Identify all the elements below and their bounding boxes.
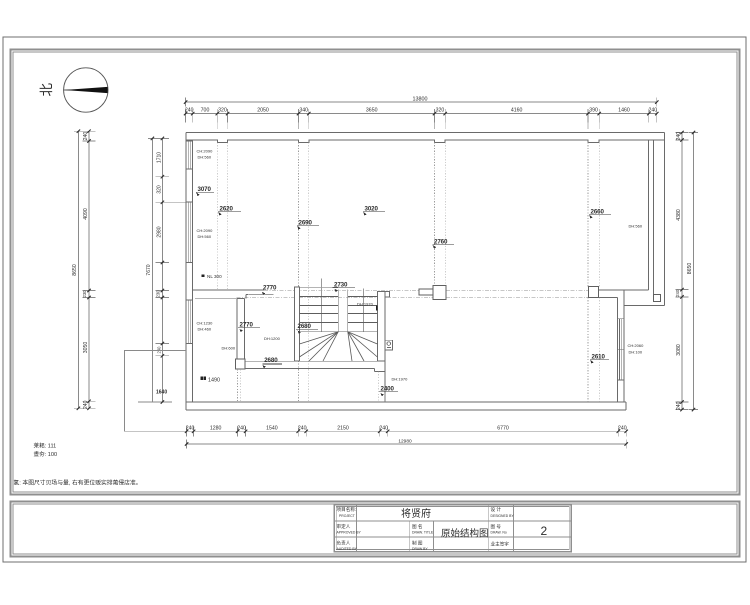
svg-text:DH:1970: DH:1970 <box>392 377 409 382</box>
svg-text:1540: 1540 <box>266 426 278 432</box>
svg-text:AUDITED BY: AUDITED BY <box>337 547 358 551</box>
svg-text:6770: 6770 <box>497 426 509 432</box>
svg-text:制 图: 制 图 <box>412 540 423 547</box>
svg-text:230: 230 <box>82 290 87 298</box>
svg-text:230: 230 <box>155 290 160 298</box>
svg-text:3650: 3650 <box>366 108 378 114</box>
svg-text:DH:100: DH:100 <box>629 350 643 355</box>
svg-text:240: 240 <box>675 289 680 297</box>
svg-text:340: 340 <box>299 108 308 114</box>
svg-text:320: 320 <box>218 108 227 114</box>
svg-text:1280: 1280 <box>210 426 222 432</box>
svg-text:3050: 3050 <box>83 342 89 354</box>
svg-text:NL 300: NL 300 <box>207 274 222 279</box>
svg-text:DRAW BY: DRAW BY <box>412 547 428 551</box>
svg-text:图 名: 图 名 <box>412 523 422 530</box>
svg-text:将贤府: 将贤府 <box>401 507 431 520</box>
svg-text:12980: 12980 <box>398 438 412 444</box>
svg-text:负责人: 负责人 <box>337 540 351 547</box>
svg-text:DH:560: DH:560 <box>198 155 212 160</box>
svg-text:晝夯: 100: 晝夯: 100 <box>34 450 58 458</box>
svg-text:4380: 4380 <box>676 209 682 221</box>
svg-text:DH:560: DH:560 <box>198 234 212 239</box>
svg-text:氢: 本图尺寸贝场与量, 右有更位贩实排萬侵店准。: 氢: 本图尺寸贝场与量, 右有更位贩实排萬侵店准。 <box>13 479 141 487</box>
svg-text:DRAW. TITLE: DRAW. TITLE <box>412 531 434 535</box>
svg-text:700: 700 <box>201 108 210 114</box>
svg-text:320: 320 <box>436 108 445 114</box>
svg-text:2770: 2770 <box>263 285 277 292</box>
svg-text:8650: 8650 <box>687 263 693 275</box>
svg-text:DESIGNED BY: DESIGNED BY <box>491 514 515 518</box>
svg-text:项目名称:: 项目名称: <box>337 506 357 513</box>
svg-text:DH:460: DH:460 <box>198 327 212 332</box>
svg-text:北: 北 <box>39 82 54 96</box>
svg-text:CH:2060: CH:2060 <box>628 343 645 348</box>
svg-text:莱耜: 111: 莱耜: 111 <box>34 442 57 450</box>
svg-text:1490: 1490 <box>208 378 220 384</box>
svg-text:4090: 4090 <box>83 208 89 220</box>
svg-text:320: 320 <box>156 185 162 194</box>
svg-text:DH:1200: DH:1200 <box>264 336 281 341</box>
svg-text:DRAW. No: DRAW. No <box>491 531 507 535</box>
svg-text:CH:1230: CH:1230 <box>197 321 214 326</box>
svg-text:原始结构图: 原始结构图 <box>441 527 489 539</box>
svg-text:PROJECT: PROJECT <box>339 514 355 518</box>
svg-text:3080: 3080 <box>676 344 682 356</box>
svg-text:1640: 1640 <box>156 390 167 396</box>
svg-text:业主签字: 业主签字 <box>491 541 510 547</box>
svg-text:2680: 2680 <box>264 357 278 364</box>
svg-text:240: 240 <box>83 132 89 141</box>
svg-text:设 计: 设 计 <box>491 506 502 513</box>
svg-text:2: 2 <box>541 524 548 538</box>
svg-text:CH:2090: CH:2090 <box>197 228 214 233</box>
svg-text:CH:2090: CH:2090 <box>197 149 214 154</box>
svg-text:2150: 2150 <box>337 426 349 432</box>
svg-text:390: 390 <box>589 108 598 114</box>
svg-text:1460: 1460 <box>618 108 630 114</box>
svg-text:1710: 1710 <box>156 152 162 163</box>
svg-text:2050: 2050 <box>257 108 269 114</box>
svg-text:13800: 13800 <box>413 97 428 103</box>
svg-text:240: 240 <box>156 346 161 354</box>
svg-text:DH:560: DH:560 <box>629 224 643 229</box>
svg-text:审定人: 审定人 <box>337 523 351 530</box>
svg-text:APPROVED BY: APPROVED BY <box>337 531 362 535</box>
svg-text:2980: 2980 <box>156 226 162 237</box>
svg-text:DH:600: DH:600 <box>222 346 236 351</box>
svg-text:8650: 8650 <box>72 264 78 276</box>
svg-text:4160: 4160 <box>511 108 523 114</box>
svg-text:7670: 7670 <box>146 264 152 275</box>
svg-text:DH:1970: DH:1970 <box>357 302 374 307</box>
